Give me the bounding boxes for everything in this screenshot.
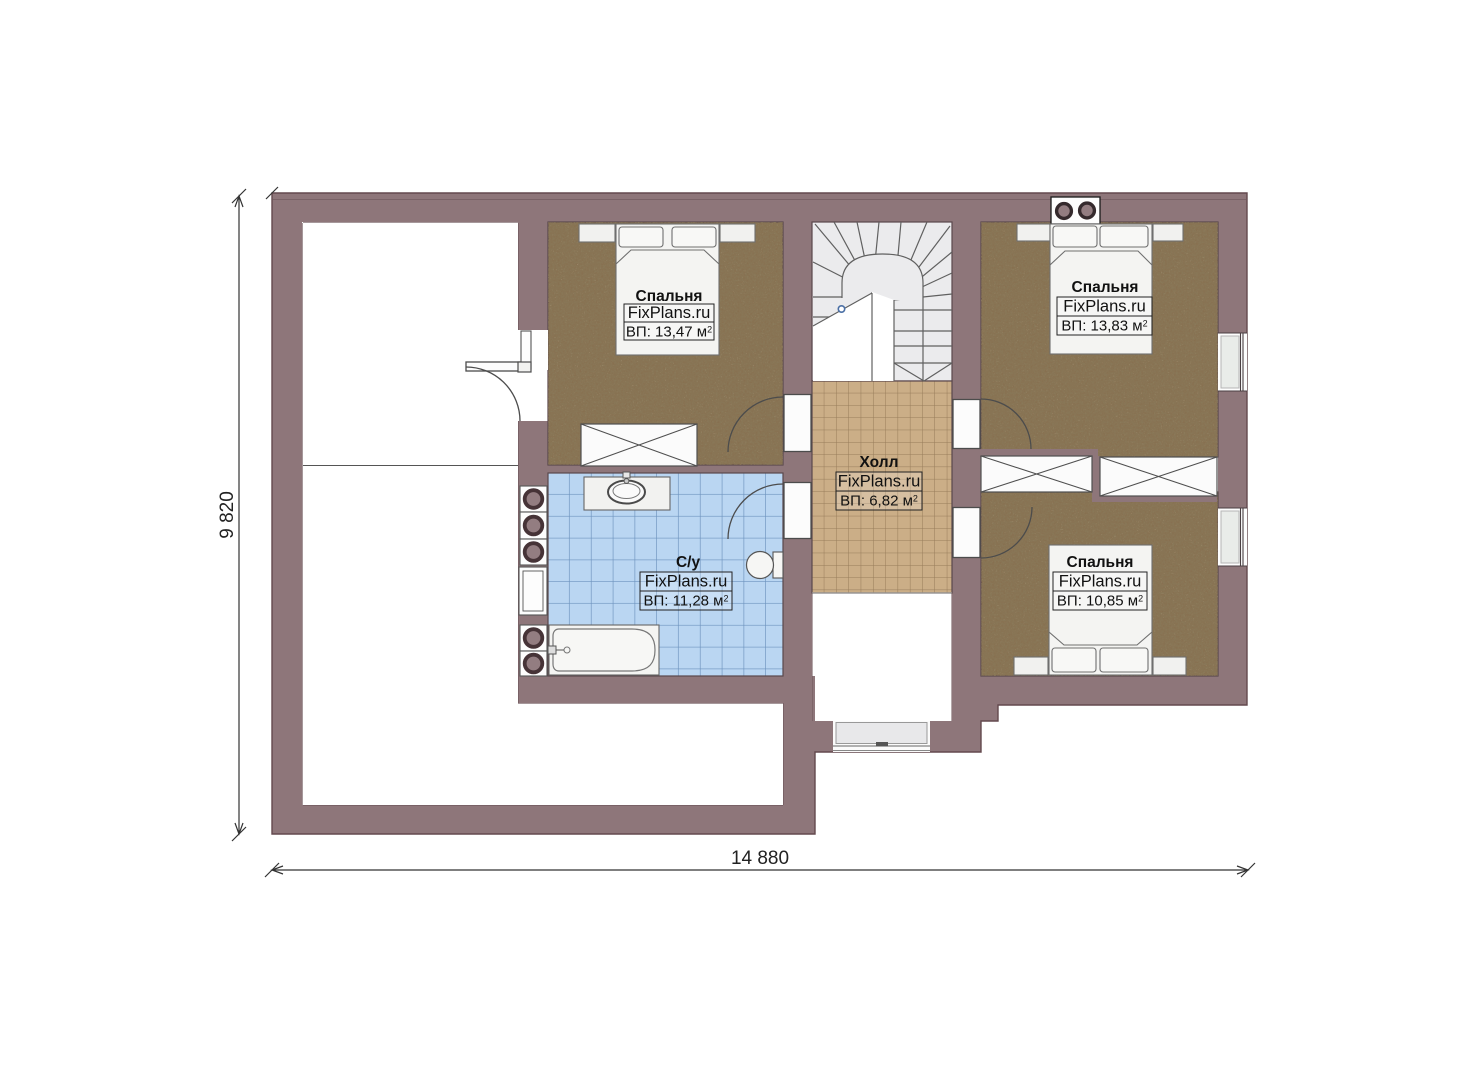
- svg-text:ВП: 11,28 м2: ВП: 11,28 м2: [643, 593, 728, 610]
- svg-text:ВП: 13,83 м2: ВП: 13,83 м2: [1061, 318, 1147, 335]
- svg-text:ВП: 10,85 м2: ВП: 10,85 м2: [1057, 593, 1143, 610]
- svg-text:Спальня: Спальня: [636, 288, 703, 305]
- svg-text:FixPlans.ru: FixPlans.ru: [645, 573, 728, 591]
- svg-text:Спальня: Спальня: [1072, 279, 1139, 296]
- svg-text:FixPlans.ru: FixPlans.ru: [1063, 298, 1146, 316]
- svg-text:FixPlans.ru: FixPlans.ru: [1059, 573, 1142, 591]
- svg-text:FixPlans.ru: FixPlans.ru: [838, 473, 921, 491]
- svg-text:ВП: 6,82 м2: ВП: 6,82 м2: [840, 493, 918, 510]
- svg-text:FixPlans.ru: FixPlans.ru: [628, 304, 711, 322]
- svg-text:ВП: 13,47 м2: ВП: 13,47 м2: [626, 324, 712, 341]
- svg-text:Холл: Холл: [860, 454, 899, 471]
- svg-text:С/у: С/у: [676, 554, 701, 571]
- svg-text:Спальня: Спальня: [1067, 554, 1134, 571]
- svg-text:9 820: 9 820: [217, 491, 238, 539]
- svg-text:14 880: 14 880: [731, 848, 789, 869]
